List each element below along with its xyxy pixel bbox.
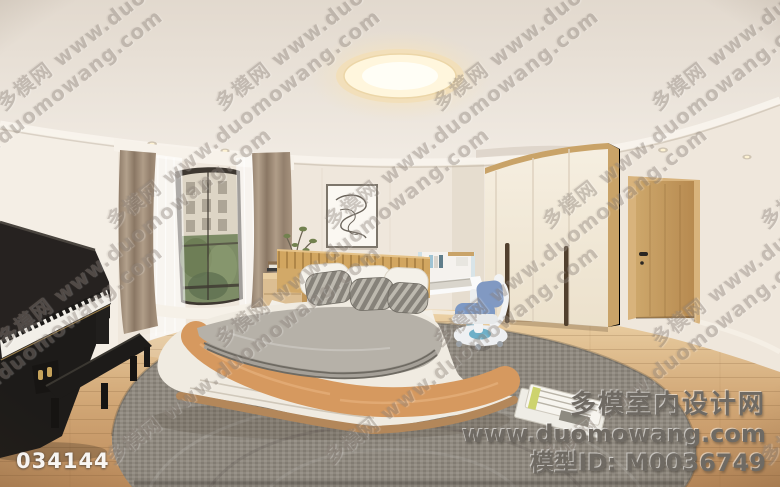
image-id-label: 034144 (16, 449, 110, 473)
brand-model-id: 模型ID: M0036749 (462, 449, 766, 477)
brand-site-url: www.duomowang.com (462, 420, 766, 448)
brand-site-name: 多模室内设计网 (462, 390, 766, 421)
brand-block: 多模室内设计网 www.duomowang.com 模型ID: M0036749 (462, 390, 766, 477)
panorama-screenshot: 多模网 www.duomowang.com多模网 www.duomowang.c… (0, 0, 780, 487)
